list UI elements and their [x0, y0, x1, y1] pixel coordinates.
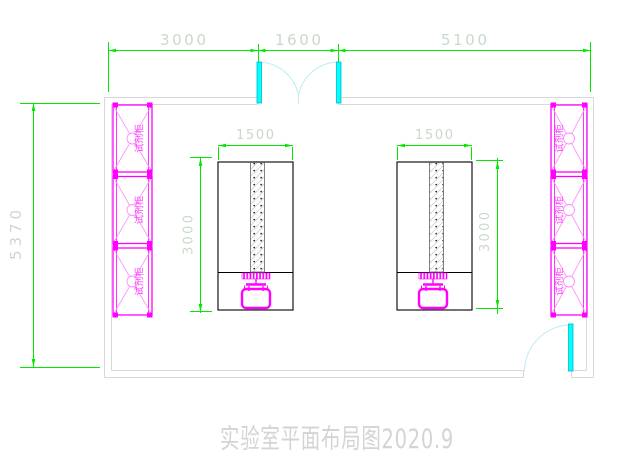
room-walls — [105, 98, 594, 378]
drawing-title: 实验室平面布局图2020.9 — [220, 424, 454, 455]
floor-plan-canvas: 3000 1600 5100 5370 试剂柜 试剂柜 试剂柜 试剂柜 试剂柜 … — [0, 0, 619, 469]
cabinet-cell — [113, 103, 153, 175]
cabinet-label: 试剂柜 — [134, 124, 146, 153]
door-arc — [258, 62, 339, 104]
reagent-shelf-strip — [430, 163, 444, 273]
cabinet-label: 试剂柜 — [554, 267, 566, 296]
dim-label-top-middle: 1600 — [275, 31, 321, 49]
cabinet-column-left: 试剂柜 试剂柜 试剂柜 — [113, 103, 153, 318]
bench-width-label: 1500 — [236, 128, 274, 143]
cabinet-cell — [113, 246, 153, 318]
bench-depth-label: 3000 — [478, 212, 493, 252]
door-leaf-right — [337, 62, 342, 103]
door-leaf-left — [257, 62, 262, 103]
cabinet-label: 试剂柜 — [554, 124, 566, 153]
single-door-bottom-right — [525, 324, 574, 372]
bench-width-label: 1500 — [415, 128, 453, 143]
cabinet-column-right: 试剂柜 试剂柜 试剂柜 — [551, 103, 588, 318]
bench-depth-label: 3000 — [182, 215, 197, 255]
cabinet-label: 试剂柜 — [554, 195, 566, 224]
dim-label-top-left: 3000 — [160, 31, 206, 49]
door-arc — [525, 325, 571, 372]
dim-label-overall-height: 5370 — [7, 210, 25, 260]
cabinet-label: 试剂柜 — [134, 267, 146, 296]
cabinet-label: 试剂柜 — [134, 195, 146, 224]
door-leaf — [569, 324, 574, 371]
double-door-top — [257, 62, 341, 104]
lab-bench-left — [218, 162, 293, 310]
dimension-top — [108, 42, 591, 92]
floor-plan-drawing: 3000 1600 5100 5370 试剂柜 试剂柜 试剂柜 试剂柜 试剂柜 … — [0, 0, 619, 469]
reagent-shelf-strip — [251, 163, 265, 273]
cabinet-cell — [113, 174, 153, 246]
dimension-left — [20, 103, 100, 368]
dim-label-top-right: 5100 — [441, 31, 487, 49]
lab-bench-right — [397, 162, 472, 310]
